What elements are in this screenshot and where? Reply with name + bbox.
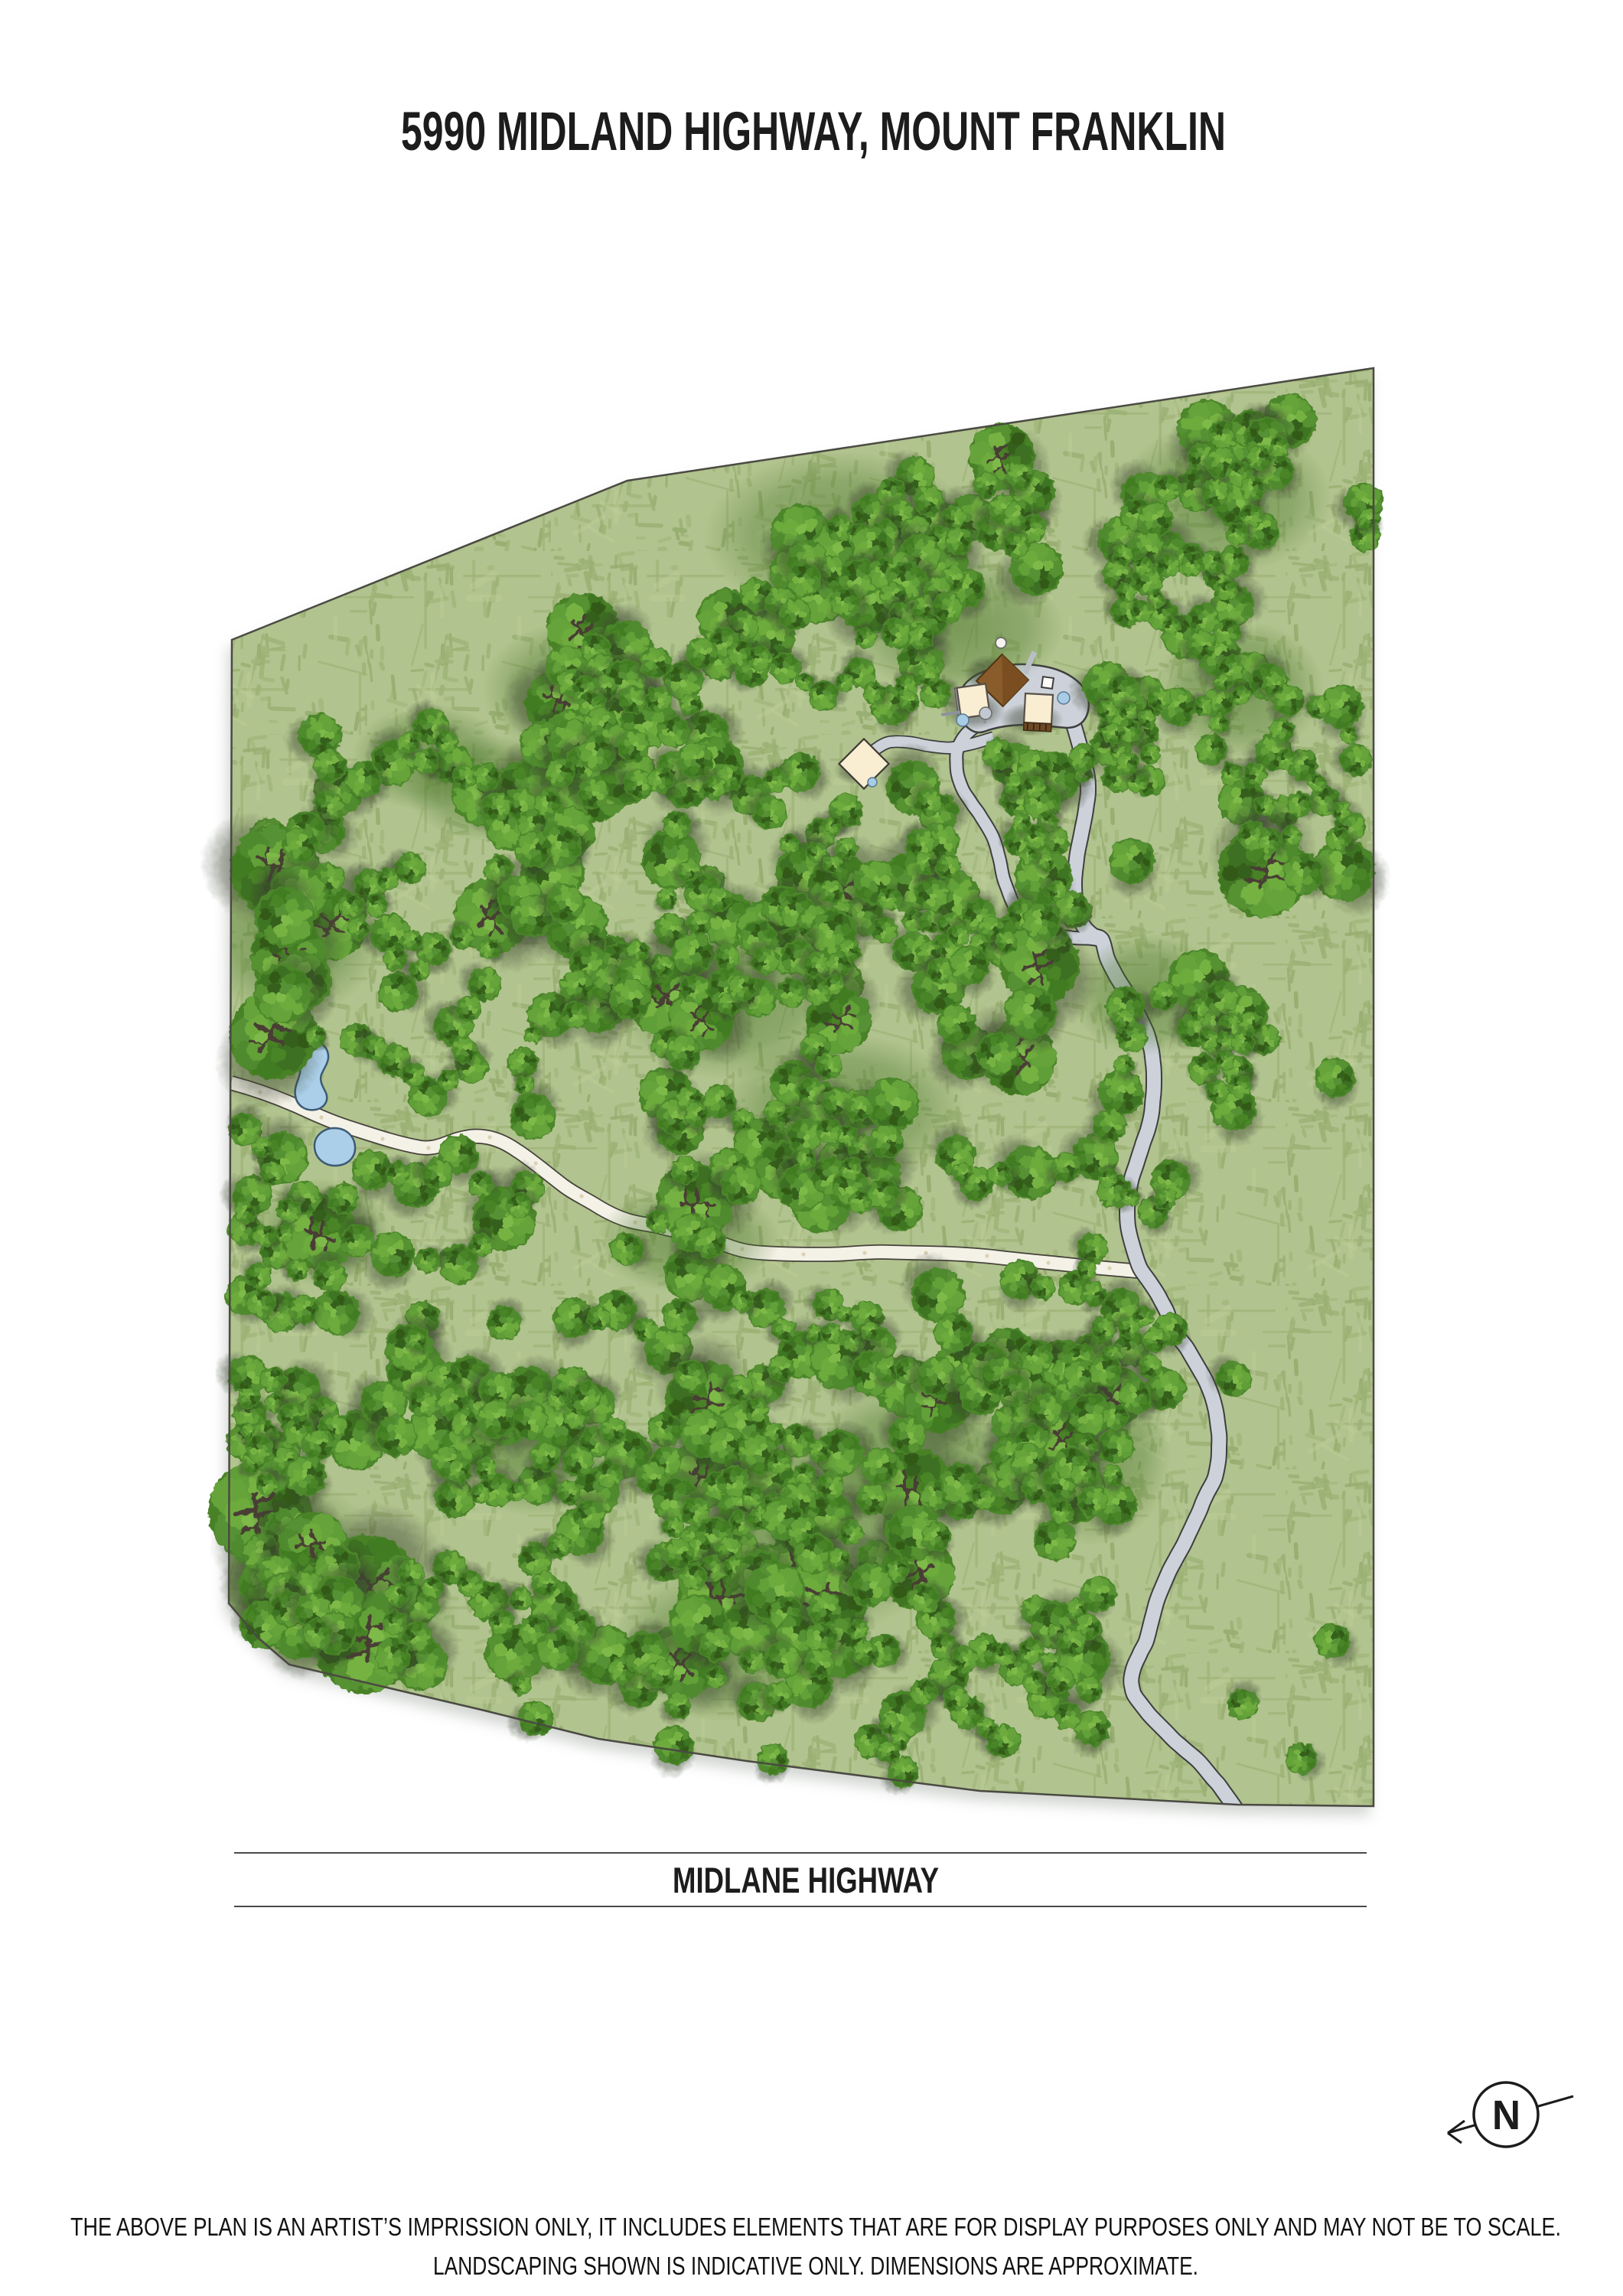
svg-text:THE ABOVE PLAN IS AN ARTIST’S: THE ABOVE PLAN IS AN ARTIST’S IMPRISSION… <box>70 2213 1561 2241</box>
svg-text:5990 MIDLAND HIGHWAY, MOUNT FR: 5990 MIDLAND HIGHWAY, MOUNT FRANKLIN <box>401 102 1226 162</box>
svg-text:LANDSCAPING SHOWN IS INDICATIV: LANDSCAPING SHOWN IS INDICATIVE ONLY. DI… <box>433 2252 1198 2280</box>
svg-text:MIDLANE HIGHWAY: MIDLANE HIGHWAY <box>673 1860 939 1900</box>
svg-text:N: N <box>1492 2092 1520 2138</box>
